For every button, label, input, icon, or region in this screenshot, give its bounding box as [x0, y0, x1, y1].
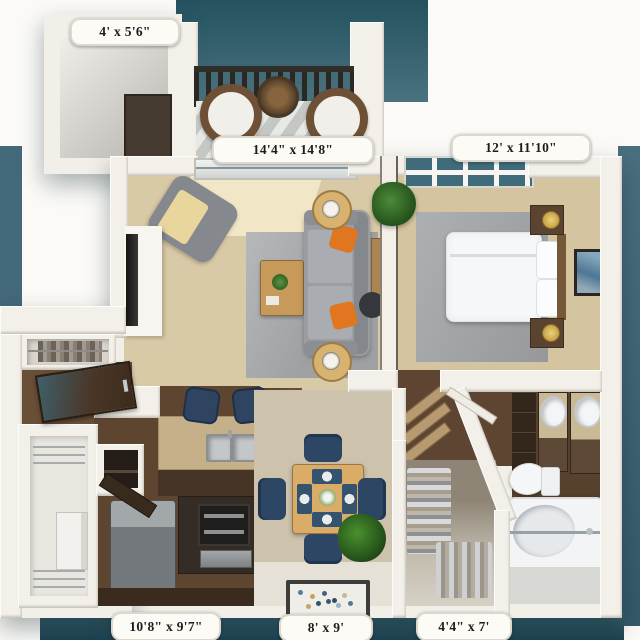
kitchen-base-cabinet — [94, 588, 260, 606]
oven-door — [200, 550, 252, 568]
table-lamp — [322, 200, 340, 218]
balcony-table — [257, 76, 299, 118]
toilet-tank — [541, 467, 560, 496]
backdrop-left — [0, 146, 22, 312]
headboard — [557, 234, 566, 320]
doormat-pattern — [298, 590, 303, 595]
label-kitchen-text: 10'8" x 9'7" — [129, 619, 202, 635]
refrigerator — [110, 500, 176, 602]
tv-screen — [126, 234, 138, 326]
placemat — [312, 469, 342, 484]
wall-closet-left — [392, 440, 406, 618]
vanity-sink — [574, 396, 602, 428]
placemat — [312, 512, 342, 527]
cooktop — [198, 504, 250, 546]
hanging-clothes — [436, 542, 492, 598]
glass-door-handle — [586, 528, 593, 535]
bath-dresser — [512, 392, 536, 472]
storage-door — [124, 94, 172, 160]
duvet-fold — [450, 254, 536, 257]
label-dining-text: 8' x 9' — [308, 620, 345, 636]
nightstand-lamp — [542, 324, 560, 342]
wall-closet-bath-lower — [494, 510, 510, 618]
bar-stool — [182, 386, 222, 426]
faucet — [228, 430, 232, 438]
wire-shelf — [33, 446, 85, 470]
wire-shelf — [33, 570, 85, 594]
table-plant — [272, 274, 288, 290]
label-living-room-text: 14'4" x 14'8" — [253, 142, 333, 158]
label-bedroom: 12' x 11'10" — [451, 134, 591, 162]
label-storage: 4' x 5'6" — [70, 18, 180, 46]
nightstand-lamp — [542, 211, 560, 229]
label-closet-text: 4'4" x 7' — [438, 619, 489, 635]
corner-plant — [372, 182, 416, 226]
sink-basin — [206, 434, 232, 462]
label-closet: 4'4" x 7' — [416, 612, 512, 640]
wall-right-exterior — [600, 156, 622, 618]
dining-chair — [304, 534, 342, 564]
label-dining: 8' x 9' — [279, 614, 373, 640]
slider-track-line — [196, 167, 356, 169]
wall-hallway-top-west — [348, 370, 398, 392]
label-living-room: 14'4" x 14'8" — [212, 136, 374, 164]
bed — [446, 232, 542, 322]
placemat — [297, 484, 312, 514]
table-book — [266, 296, 279, 305]
vanity-sink — [540, 396, 567, 428]
bathroom-floor-light — [506, 567, 602, 604]
placemat — [342, 484, 357, 514]
label-kitchen: 10'8" x 9'7" — [111, 612, 221, 640]
label-storage-text: 4' x 5'6" — [99, 24, 150, 40]
kitchen-cabinets — [158, 470, 258, 496]
dining-chair — [258, 478, 286, 520]
label-bedroom-text: 12' x 11'10" — [485, 140, 557, 156]
wall-entry-top — [0, 306, 126, 334]
dining-chair — [304, 434, 342, 462]
door-handle — [123, 380, 129, 392]
closet-rod — [28, 350, 108, 352]
potted-plant — [338, 514, 386, 562]
washer — [56, 512, 88, 570]
floor-plan-canvas: 4' x 5'6" 14'4" x 14'8" 12' x 11'10" 10'… — [0, 0, 640, 640]
centerpiece — [319, 489, 336, 506]
table-lamp — [322, 352, 340, 370]
